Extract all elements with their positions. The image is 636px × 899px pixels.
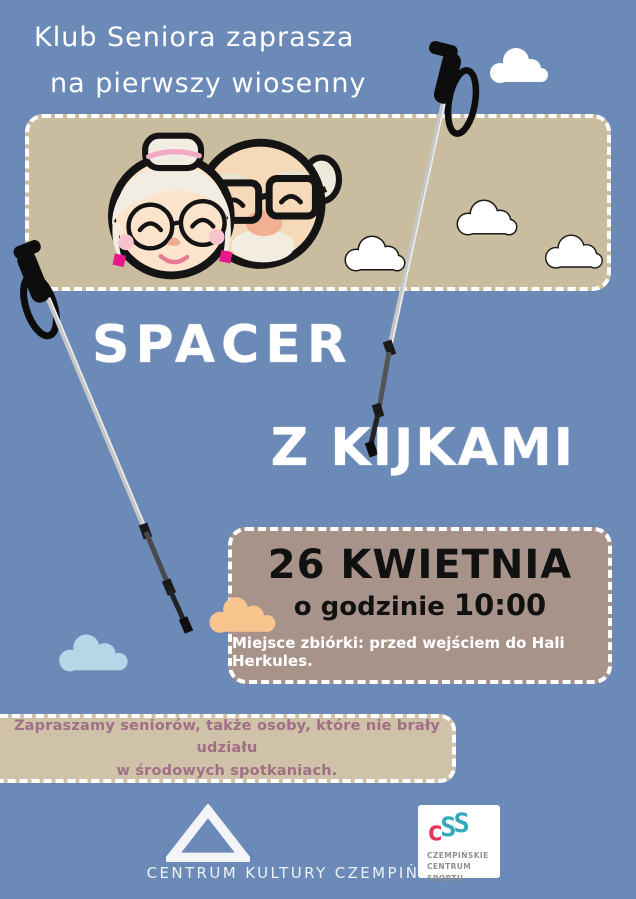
event-time-label: o godzinie bbox=[294, 592, 445, 622]
header-line-2: na pierwszy wiosenny bbox=[50, 68, 366, 99]
event-date: 26 KWIETNIA bbox=[268, 544, 573, 586]
event-time-value: 10:00 bbox=[454, 588, 546, 622]
poster-title-line-1: SPACER bbox=[92, 315, 353, 375]
outlined-cloud-icon bbox=[453, 199, 519, 239]
blue-cloud-icon bbox=[57, 631, 133, 677]
triangle-mountain-logo bbox=[166, 804, 250, 864]
note-line-1: Zapraszamy seniorów, także osoby, które … bbox=[2, 715, 452, 760]
ccs-letter-c: c bbox=[427, 818, 440, 845]
ccs-logo: c S S CZEMPIŃSKIE CENTRUM SPORTU bbox=[418, 805, 500, 878]
ccs-letter-s1: S bbox=[440, 814, 453, 841]
ccs-letter-s2: S bbox=[454, 810, 467, 837]
event-poster: Klub Seniora zaprasza na pierwszy wiosen… bbox=[0, 0, 636, 899]
event-meeting-point: Miejsce zbiórki: przed wejściem do Hali … bbox=[232, 634, 608, 670]
header-line-1: Klub Seniora zaprasza bbox=[34, 22, 354, 53]
ccs-sub-line-2: CENTRUM SPORTU bbox=[427, 861, 500, 884]
white-cloud-icon bbox=[486, 46, 550, 88]
event-time: o godzinie 10:00 bbox=[294, 588, 546, 622]
poster-title-line-2: Z KIJKAMI bbox=[271, 418, 575, 478]
note-line-2: w środowych spotkaniach. bbox=[117, 760, 338, 782]
walking-pole-left-icon bbox=[12, 238, 189, 632]
outlined-cloud-icon bbox=[542, 234, 604, 272]
grandparents-illustration bbox=[84, 124, 346, 288]
ccs-sub-line-1: CZEMPIŃSKIE bbox=[427, 850, 500, 861]
hero-banner bbox=[25, 114, 611, 291]
peach-cloud-icon bbox=[206, 594, 282, 638]
event-details-box: 26 KWIETNIA o godzinie 10:00 Miejsce zbi… bbox=[228, 527, 612, 684]
outlined-cloud-icon bbox=[342, 235, 406, 275]
culture-center-label: CENTRUM KULTURY CZEMPIŃ bbox=[118, 864, 448, 882]
note-box: Zapraszamy seniorów, także osoby, które … bbox=[0, 714, 456, 783]
ccs-logo-letters: c S S bbox=[427, 815, 500, 845]
grandma-face-icon bbox=[112, 136, 233, 276]
